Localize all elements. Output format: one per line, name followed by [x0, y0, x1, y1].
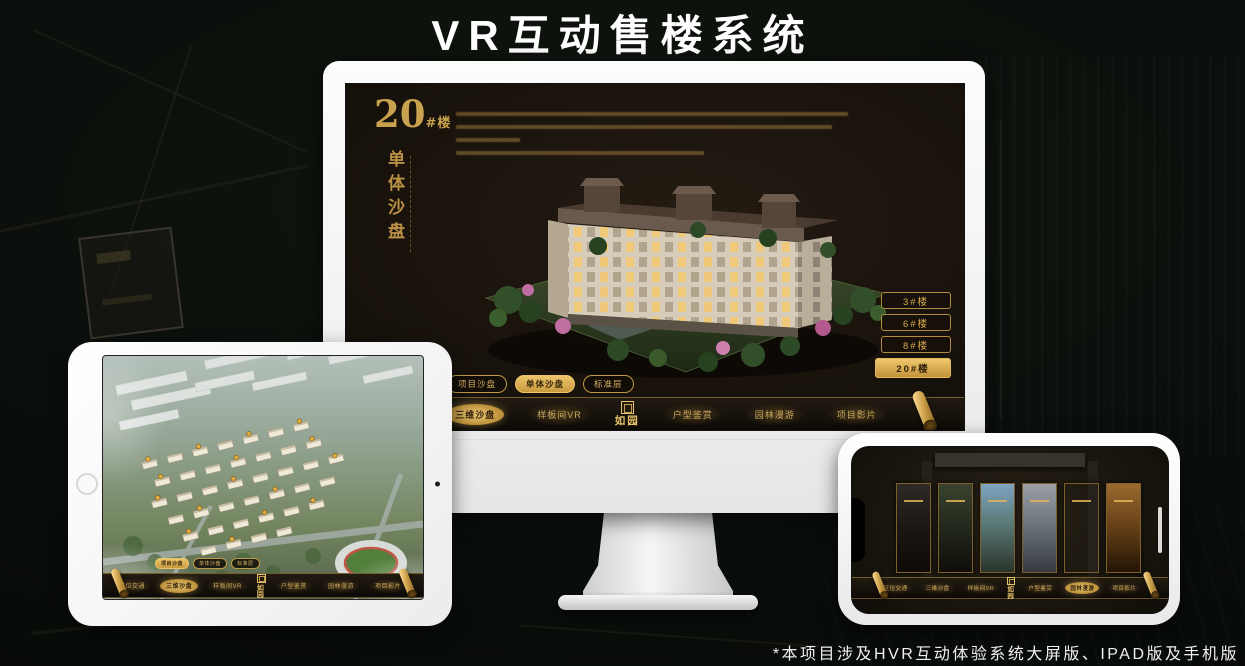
- floor-button-group: 3#楼 6#楼 8#楼 20#楼: [875, 292, 951, 378]
- monitor-stand: [583, 512, 733, 598]
- seal-icon: [621, 401, 634, 414]
- nav-item[interactable]: 样板间VR: [528, 404, 591, 425]
- nav-item-active[interactable]: 园林漫游: [1065, 582, 1099, 594]
- subtab-standard-floor[interactable]: 标准层: [231, 558, 260, 569]
- brand-logo: 如园: [615, 401, 640, 427]
- hero-block-number: 20#楼: [374, 96, 451, 133]
- gallery-panel[interactable]: [938, 483, 973, 573]
- floor-button[interactable]: 6#楼: [881, 314, 951, 331]
- map-road-line: [0, 165, 307, 239]
- subtab-project-sandbox[interactable]: 项目沙盘: [447, 375, 507, 393]
- building-render-image: [468, 150, 898, 385]
- ipad-subtab-row: 项目沙盘 单体沙盘 标准层: [155, 558, 260, 569]
- home-button: [76, 473, 98, 495]
- ipad-device: 项目沙盘 单体沙盘 标准层 区位交通 三维沙盘 样板间VR 如园 户型鉴赏 园林…: [68, 342, 452, 626]
- nav-item-active[interactable]: 三维沙盘: [160, 579, 198, 593]
- nav-item[interactable]: 户型鉴赏: [275, 579, 313, 593]
- nav-item[interactable]: 户型鉴赏: [664, 404, 722, 425]
- map-plaque: [78, 227, 184, 340]
- nav-item[interactable]: 三维沙盘: [921, 582, 955, 594]
- aerial-render-image: [103, 356, 423, 599]
- hero-block-name: 单体沙盘: [382, 150, 407, 280]
- brand-logo: 如园: [257, 574, 266, 598]
- gallery-panel[interactable]: [896, 483, 931, 573]
- page-title: VR互动售楼系统: [0, 2, 1245, 63]
- stage: VR互动售楼系统 20#楼 单体沙盘: [0, 0, 1245, 666]
- monitor-subtab-row: 项目沙盘 单体沙盘 标准层: [447, 375, 634, 393]
- subtab-standard-floor[interactable]: 标准层: [583, 375, 634, 393]
- hero-subtitle-rule: [410, 156, 411, 252]
- seal-icon: [1007, 577, 1015, 585]
- nav-item[interactable]: 户型鉴赏: [1023, 582, 1057, 594]
- map-buildings-texture: [985, 56, 1245, 456]
- floor-button[interactable]: 8#楼: [881, 336, 951, 353]
- subtab-single-sandbox[interactable]: 单体沙盘: [193, 558, 227, 569]
- panorama-gallery: [896, 483, 1141, 573]
- gallery-panel[interactable]: [1106, 483, 1141, 573]
- seal-icon: [257, 574, 266, 583]
- nav-item[interactable]: 样板间VR: [207, 579, 248, 593]
- ipad-screen: 项目沙盘 单体沙盘 标准层 区位交通 三维沙盘 样板间VR 如园 户型鉴赏 园林…: [102, 355, 424, 600]
- phone-screen: 区位交通 三维沙盘 样板间VR 如园 户型鉴赏 园林漫游 项目影片: [851, 446, 1169, 614]
- nav-item[interactable]: 园林漫游: [746, 404, 804, 425]
- subtab-project-sandbox[interactable]: 项目沙盘: [155, 558, 189, 569]
- footnote: *本项目涉及HVR互动体验系统大屏版、IPAD版及手机版: [773, 640, 1239, 664]
- brand-logo: 如园: [1007, 577, 1015, 599]
- monitor-base: [558, 595, 758, 610]
- phone-notch: [852, 498, 865, 562]
- nav-item[interactable]: 样板间VR: [963, 582, 1000, 594]
- gallery-panel[interactable]: [980, 483, 1015, 573]
- phone-device: 区位交通 三维沙盘 样板间VR 如园 户型鉴赏 园林漫游 项目影片: [838, 433, 1180, 625]
- gallery-panel[interactable]: [1064, 483, 1099, 573]
- floor-button-active[interactable]: 20#楼: [875, 358, 951, 378]
- home-indicator: [1158, 507, 1162, 553]
- camera-icon: [435, 482, 440, 487]
- floor-button[interactable]: 3#楼: [881, 292, 951, 309]
- subtab-single-sandbox[interactable]: 单体沙盘: [515, 375, 575, 393]
- nav-item-active[interactable]: 三维沙盘: [446, 404, 504, 425]
- nav-item[interactable]: 项目影片: [828, 404, 886, 425]
- phone-bottom-navbar: 区位交通 三维沙盘 样板间VR 如园 户型鉴赏 园林漫游 项目影片: [852, 577, 1168, 599]
- interior-door-frame: [935, 453, 1085, 467]
- nav-item[interactable]: 项目影片: [1107, 582, 1141, 594]
- ipad-bottom-navbar: 区位交通 三维沙盘 样板间VR 如园 户型鉴赏 园林漫游 项目影片: [103, 573, 423, 598]
- nav-item[interactable]: 园林漫游: [322, 579, 360, 593]
- gallery-panel[interactable]: [1022, 483, 1057, 573]
